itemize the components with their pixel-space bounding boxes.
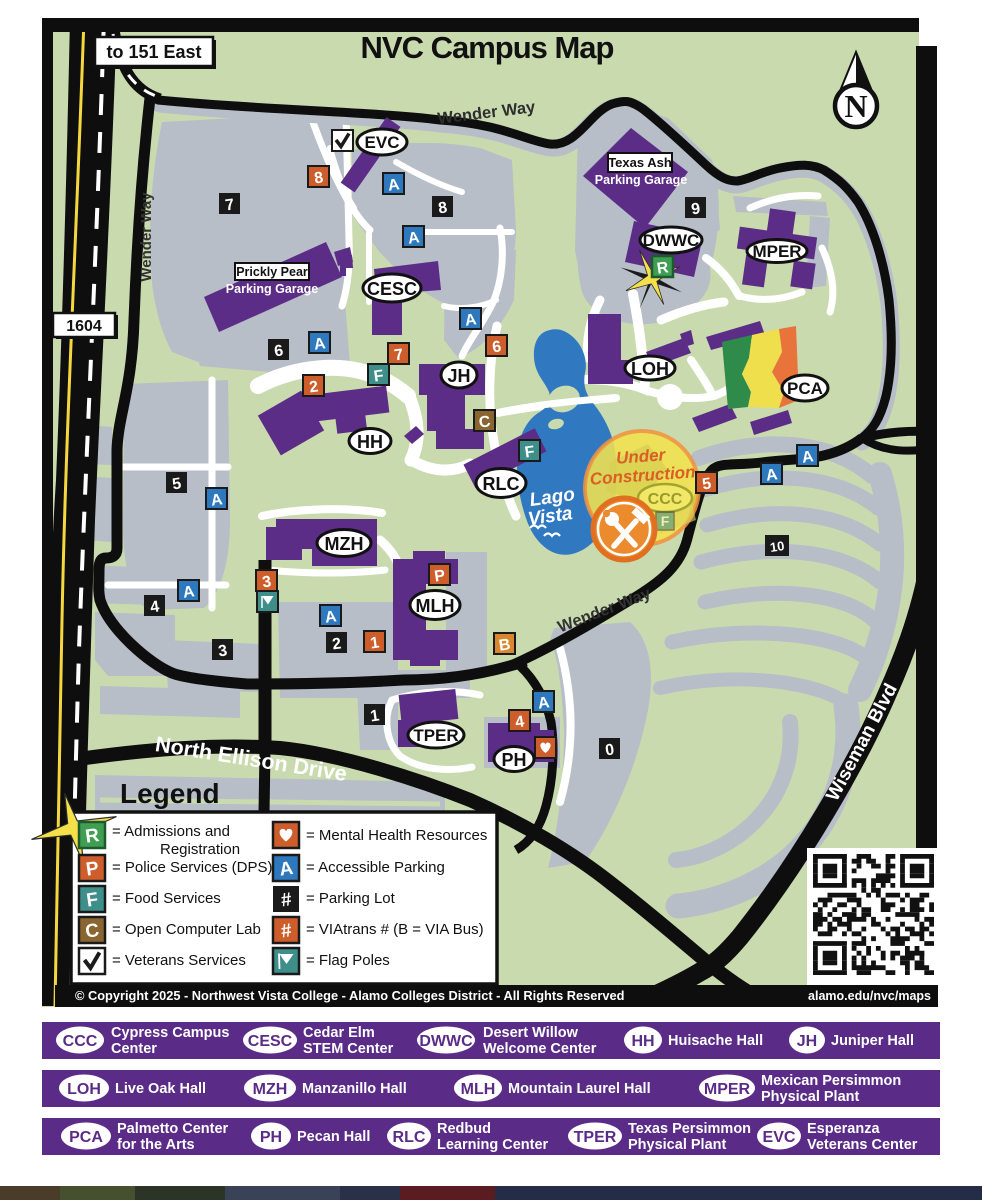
svg-text:Pecan Hall: Pecan Hall <box>297 1129 370 1145</box>
svg-text:MZH: MZH <box>253 1081 288 1098</box>
svg-text:= Parking Lot: = Parking Lot <box>306 890 396 907</box>
svg-text:Redbud: Redbud <box>437 1121 491 1137</box>
svg-text:Manzanillo Hall: Manzanillo Hall <box>302 1081 407 1097</box>
svg-text:Cypress Campus: Cypress Campus <box>111 1025 229 1041</box>
svg-text:1604: 1604 <box>66 318 102 335</box>
svg-text:PH: PH <box>260 1129 282 1146</box>
svg-text:HH: HH <box>357 432 383 452</box>
svg-text:= Mental Health Resources: = Mental Health Resources <box>306 827 487 844</box>
svg-text:EVC: EVC <box>763 1129 796 1146</box>
svg-text:Juniper Hall: Juniper Hall <box>831 1033 914 1049</box>
svg-text:CCC: CCC <box>648 491 683 508</box>
svg-text:Esperanza: Esperanza <box>807 1121 880 1137</box>
svg-text:Texas Ash: Texas Ash <box>608 155 672 170</box>
svg-text:CESC: CESC <box>248 1033 293 1050</box>
svg-text:PCA: PCA <box>69 1129 103 1146</box>
svg-text:for the Arts: for the Arts <box>117 1137 195 1153</box>
svg-text:N: N <box>844 88 867 124</box>
svg-text:Physical Plant: Physical Plant <box>628 1137 726 1153</box>
svg-text:RLC: RLC <box>393 1129 426 1146</box>
svg-text:Center: Center <box>111 1041 157 1057</box>
svg-text:F: F <box>661 513 670 529</box>
svg-text:to 151 East: to 151 East <box>106 42 201 62</box>
svg-text:Live Oak Hall: Live Oak Hall <box>115 1081 206 1097</box>
svg-text:Legend: Legend <box>120 778 220 809</box>
svg-text:MZH: MZH <box>325 534 364 554</box>
svg-text:RLC: RLC <box>483 474 520 494</box>
svg-text:10: 10 <box>769 538 785 555</box>
svg-text:TPER: TPER <box>413 726 458 745</box>
svg-text:MPER: MPER <box>752 242 801 261</box>
svg-text:= Open Computer Lab: = Open Computer Lab <box>112 921 261 938</box>
svg-text:DWWC: DWWC <box>643 231 700 250</box>
svg-text:= Veterans Services: = Veterans Services <box>112 952 246 969</box>
svg-text:CCC: CCC <box>63 1033 98 1050</box>
svg-text:= Admissions and: = Admissions and <box>112 823 230 840</box>
svg-text:= Police Services (DPS): = Police Services (DPS) <box>112 859 272 876</box>
svg-text:LOH: LOH <box>67 1081 101 1098</box>
svg-text:MPER: MPER <box>704 1081 751 1098</box>
svg-text:Parking Garage: Parking Garage <box>595 173 687 187</box>
svg-text:JH: JH <box>797 1033 817 1050</box>
svg-text:Learning Center: Learning Center <box>437 1137 549 1153</box>
svg-text:Cedar Elm: Cedar Elm <box>303 1025 375 1041</box>
svg-text:MLH: MLH <box>461 1081 496 1098</box>
svg-text:Prickly Pear: Prickly Pear <box>236 265 308 279</box>
svg-text:B: B <box>498 636 512 654</box>
svg-text:= Flag Poles: = Flag Poles <box>306 952 390 969</box>
svg-text:Mexican Persimmon: Mexican Persimmon <box>761 1073 901 1089</box>
svg-text:Desert Willow: Desert Willow <box>483 1025 579 1041</box>
svg-text:Mountain Laurel Hall: Mountain Laurel Hall <box>508 1081 651 1097</box>
svg-text:EVC: EVC <box>365 133 400 152</box>
svg-text:DWWC: DWWC <box>419 1033 473 1050</box>
svg-text:LOH: LOH <box>631 359 669 379</box>
svg-text:= VIAtrans # (B = VIA Bus): = VIAtrans # (B = VIA Bus) <box>306 921 484 938</box>
svg-text:= Accessible Parking: = Accessible Parking <box>306 859 445 876</box>
svg-text:alamo.edu/nvc/maps: alamo.edu/nvc/maps <box>808 989 931 1003</box>
svg-text:Parking Garage: Parking Garage <box>226 282 318 296</box>
svg-text:JH: JH <box>447 366 470 386</box>
svg-text:Welcome Center: Welcome Center <box>483 1041 597 1057</box>
svg-text:Registration: Registration <box>160 841 240 858</box>
svg-text:PH: PH <box>501 750 526 770</box>
svg-text:© Copyright 2025 - Northwest V: © Copyright 2025 - Northwest Vista Colle… <box>75 988 624 1003</box>
svg-text:Physical Plant: Physical Plant <box>761 1089 859 1105</box>
svg-text:Texas Persimmon: Texas Persimmon <box>628 1121 751 1137</box>
svg-text:Palmetto Center: Palmetto Center <box>117 1121 229 1137</box>
svg-text:TPER: TPER <box>574 1129 617 1146</box>
svg-text:STEM Center: STEM Center <box>303 1041 394 1057</box>
svg-text:Wender Way: Wender Way <box>138 192 155 282</box>
svg-text:PCA: PCA <box>787 379 823 398</box>
svg-text:HH: HH <box>631 1033 654 1050</box>
svg-text:Veterans Center: Veterans Center <box>807 1137 918 1153</box>
svg-text:MLH: MLH <box>416 596 455 616</box>
svg-text:NVC Campus Map: NVC Campus Map <box>361 30 614 65</box>
svg-text:Huisache Hall: Huisache Hall <box>668 1033 763 1049</box>
svg-text:CESC: CESC <box>367 279 417 299</box>
svg-text:= Food Services: = Food Services <box>112 890 221 907</box>
